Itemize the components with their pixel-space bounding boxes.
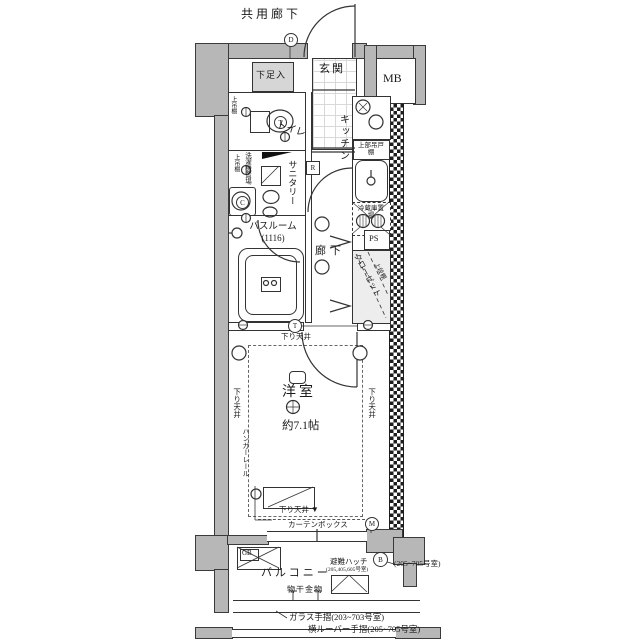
toilet-tank: [250, 111, 270, 133]
shoe-box-label: 下足入: [256, 70, 286, 80]
washer-place-label: 洗濯機置場: [243, 152, 250, 194]
genkan-label: 玄関: [319, 63, 345, 76]
evacuation-hatch-box: [331, 575, 369, 594]
hanger-rail-label: ハンガーレール: [242, 428, 250, 486]
kitchen-sink: [355, 160, 388, 202]
bathroom-label: バスルーム: [238, 222, 308, 233]
meter-box-label: MB: [383, 72, 402, 86]
bathroom-size-label: (1116): [238, 233, 308, 243]
symbol-d-circle: D: [284, 33, 298, 47]
kitchen-label: キッチン: [337, 114, 349, 180]
wall-lower-floor-left: [196, 628, 232, 638]
stove-counter: [352, 96, 391, 140]
light-box-symbol: [289, 371, 306, 384]
symbol-r-label: R: [311, 164, 316, 172]
balcony-label: バルコニー: [261, 567, 331, 580]
kitchen-upper-cabinet-label: 上部吊戸棚: [355, 142, 387, 157]
ceiling-drop-right-label: 下り天井: [367, 388, 376, 432]
ceiling-drop-arrow: ▼: [311, 505, 319, 514]
symbol-m-circle: M: [365, 517, 379, 531]
sanitary-counter: [261, 166, 281, 186]
symbol-t2-label: T: [293, 322, 297, 330]
pipe-space-label: PS: [369, 234, 378, 244]
symbol-c-circle: C: [236, 196, 249, 209]
symbol-b-label: B: [378, 556, 383, 564]
symbol-r-box: R: [306, 161, 320, 175]
ceiling-drop-top-label: 下り天井: [281, 333, 311, 342]
washer-upper-shelf-label: 上吊棚: [232, 154, 239, 184]
wall-sanitary-top: [228, 150, 305, 151]
wall-right-hatched: [389, 104, 404, 540]
wall-room-bottom-left: [228, 536, 268, 544]
common-corridor-label: 共用廊下: [241, 8, 301, 22]
ceiling-drop-left-label: 下り天井: [232, 388, 241, 432]
right-rooms-note: (205~705号室): [394, 560, 441, 569]
gb-label: GB: [242, 549, 252, 557]
symbol-m-label: M: [369, 520, 375, 528]
curtain-box-label: カーテンボックス: [288, 521, 348, 530]
ceiling-drop-bottom-text: 下り天井: [279, 505, 309, 514]
toilet-label: トイレ: [275, 120, 307, 140]
room-window: [267, 531, 367, 542]
toilet-upper-shelf-label: 上吊棚: [229, 96, 236, 126]
wall-toilet-top: [228, 92, 312, 93]
western-room-label: 洋室: [282, 385, 316, 401]
western-room-size-label: 約7.1帖: [282, 420, 319, 433]
glass-handrail-note: ガラス手摺(203~703号室): [289, 613, 384, 623]
evacuation-hatch-label: 避難ハッチ: [330, 558, 368, 567]
evacuation-hatch-rooms-label: (205,405,605号室): [326, 567, 368, 573]
wall-top-left-block: [196, 44, 228, 116]
wall-left: [215, 116, 228, 542]
laundry-hardware-label: 物干金物: [287, 585, 323, 594]
symbol-b-circle: B: [373, 552, 388, 567]
floor-plan-canvas: D T C R T M B 共用廊下 下足入 玄関 MB トイレ 上吊棚 キッチ…: [0, 0, 640, 640]
symbol-d-label: D: [288, 36, 293, 44]
fridge-place-label: 冷蔵庫置場: [357, 205, 385, 220]
wall-bottom-left-block: [196, 536, 228, 570]
louver-handrail-note: 横ルーバー手摺(205~705号室): [308, 625, 420, 635]
symbol-t2-circle: T: [288, 319, 302, 333]
symbol-c-label: C: [240, 199, 245, 207]
bath-faucet-box: [261, 277, 281, 292]
ceiling-drop-bottom-label: 下り天井 ▼: [279, 505, 319, 515]
hallway-label: 廊下: [315, 245, 345, 258]
wall-balcony-left: [215, 570, 228, 612]
